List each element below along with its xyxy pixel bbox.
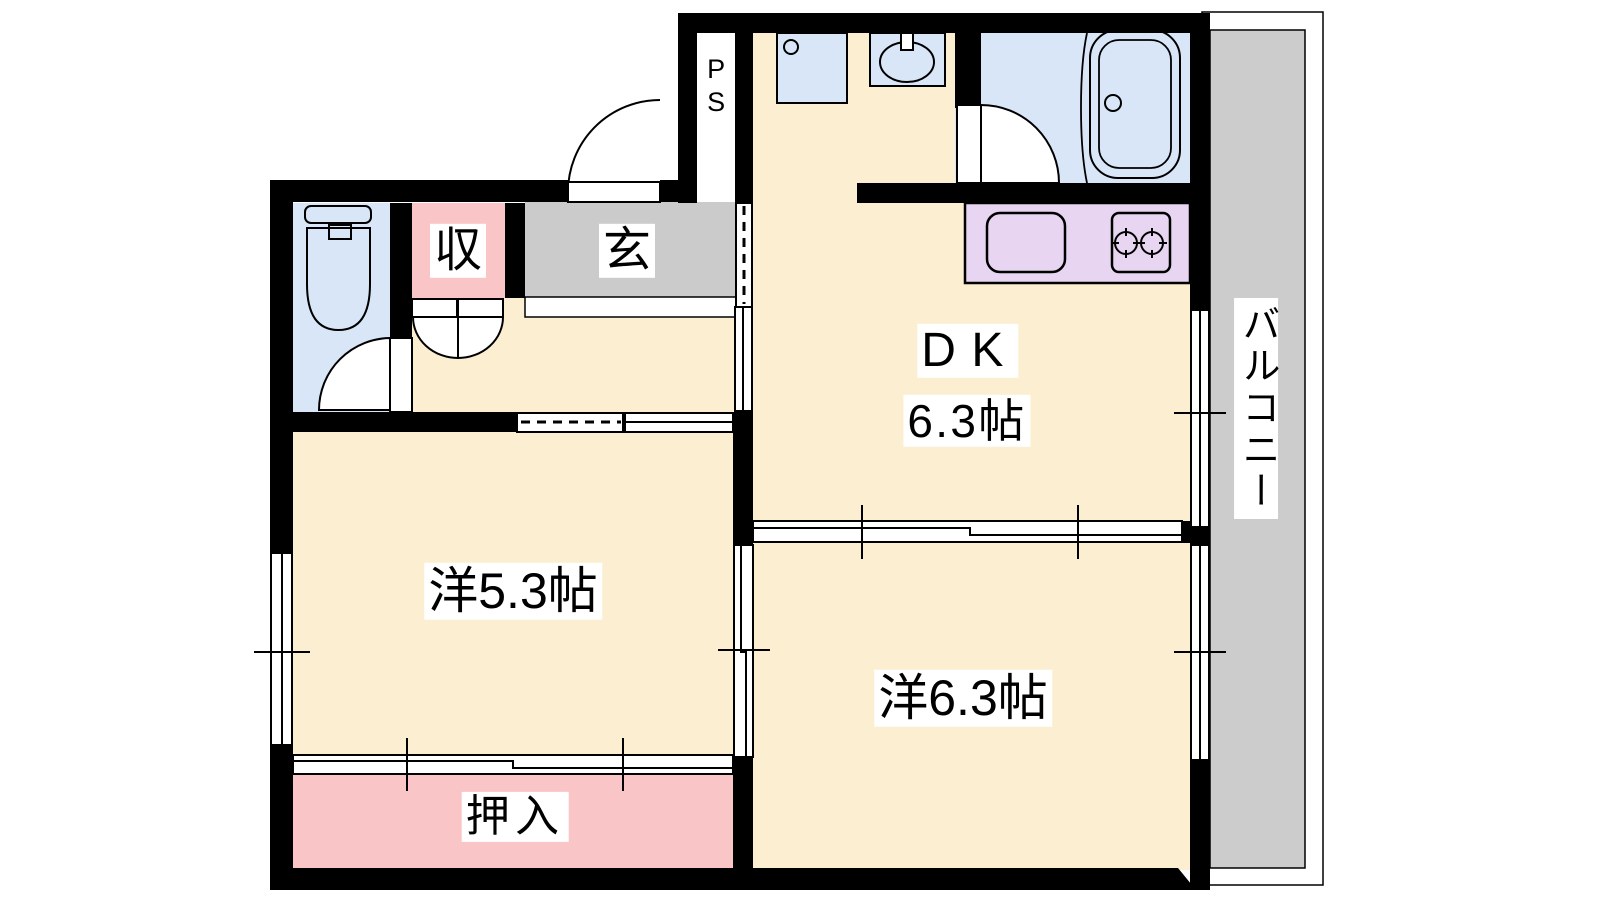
entrance-step xyxy=(525,297,737,317)
dk-name-label: DK xyxy=(917,324,1018,378)
slider-hall-dk xyxy=(735,307,752,411)
oshiire-label: 押入 xyxy=(462,792,569,842)
storage-label: 収 xyxy=(430,224,486,278)
front-door xyxy=(568,100,660,202)
pipe-space-label: PS xyxy=(698,52,734,122)
western-room-2-label: 洋6.3帖 xyxy=(874,670,1052,727)
floor-plan-drawing xyxy=(0,0,1600,900)
balcony-label: バルコニー xyxy=(1234,298,1278,519)
washer-pan-icon xyxy=(777,33,847,103)
wash-basin-icon xyxy=(870,33,945,86)
floor-plan: PS 収 玄 DK 6.3帖 洋5.3帖 洋6.3帖 押入 バルコニー xyxy=(0,0,1600,900)
dashed-partition-entrance-dk xyxy=(736,203,752,307)
slider-hall-room1 xyxy=(517,413,733,432)
entrance-label: 玄 xyxy=(599,224,655,278)
dk-size-label: 6.3帖 xyxy=(903,395,1030,447)
western-room-1-label: 洋5.3帖 xyxy=(424,563,602,620)
